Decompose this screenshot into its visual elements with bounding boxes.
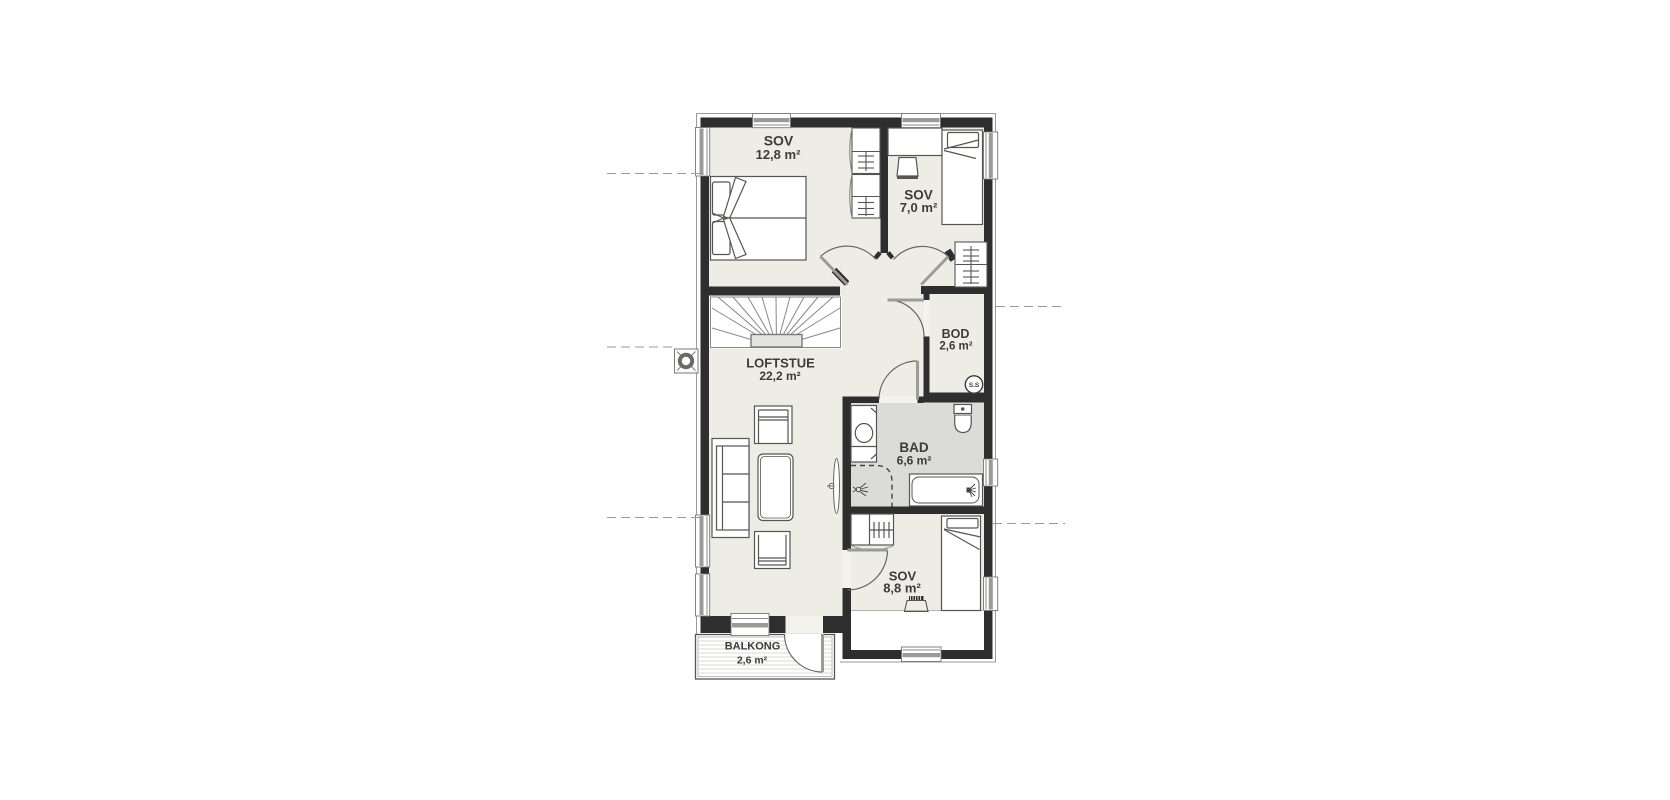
svg-text:6,6 m²: 6,6 m² — [897, 454, 932, 468]
svg-text:8,8 m²: 8,8 m² — [883, 581, 921, 596]
svg-text:22,2 m²: 22,2 m² — [759, 369, 800, 383]
svg-text:12,8 m²: 12,8 m² — [756, 147, 801, 162]
svg-text:7,0 m²: 7,0 m² — [900, 200, 938, 215]
svg-text:2,6 m²: 2,6 m² — [737, 655, 768, 667]
svg-text:2,6 m²: 2,6 m² — [939, 341, 972, 353]
svg-text:S.S: S.S — [969, 382, 980, 389]
svg-text:BALKONG: BALKONG — [725, 641, 781, 653]
svg-text:BOD: BOD — [942, 327, 970, 341]
